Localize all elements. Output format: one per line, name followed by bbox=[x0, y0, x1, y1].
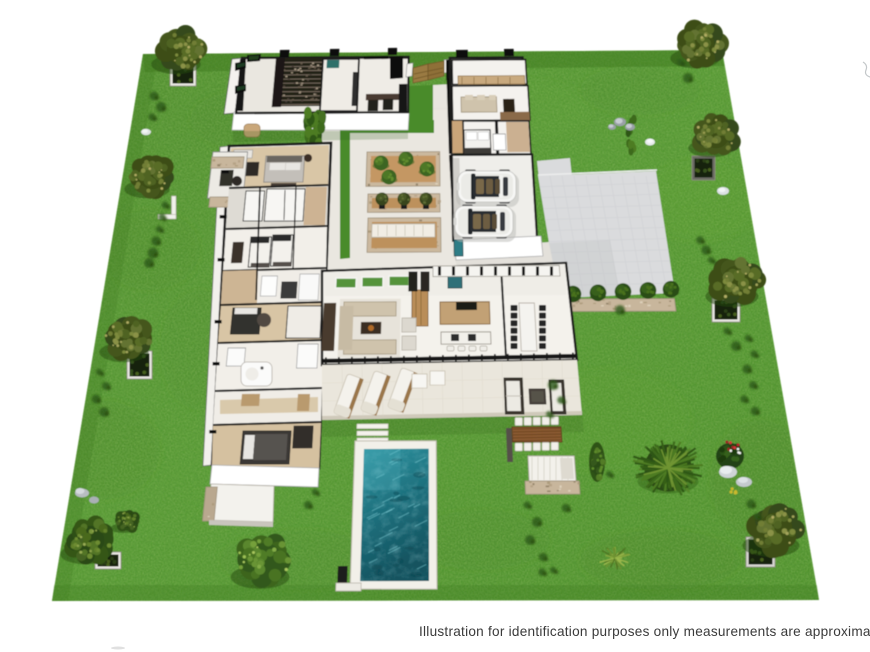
svg-text:Illustration for identificatio: Illustration for identification purposes… bbox=[419, 624, 870, 639]
